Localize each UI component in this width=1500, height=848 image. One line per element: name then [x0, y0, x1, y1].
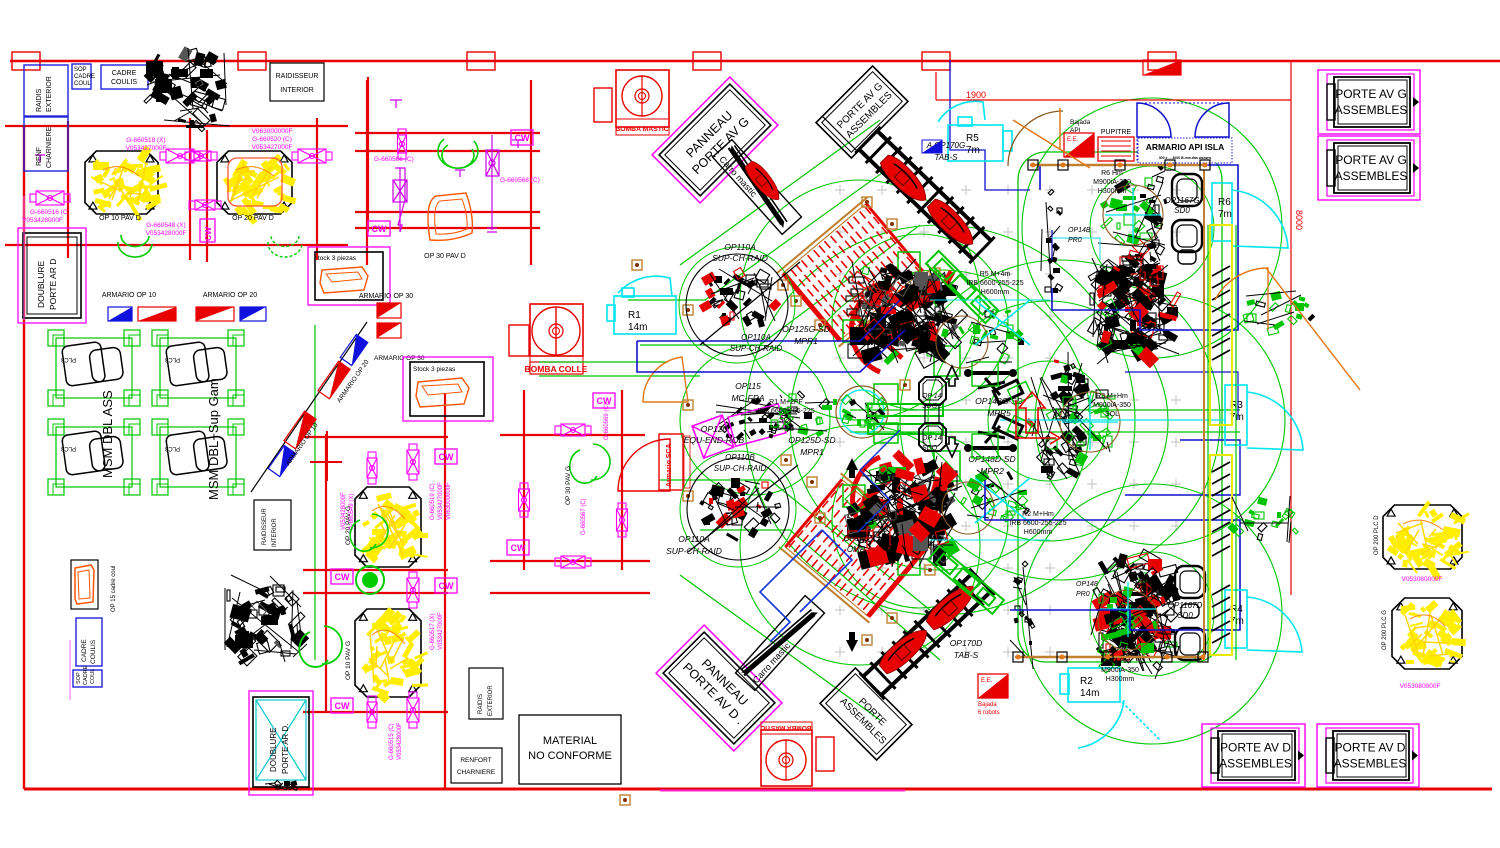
- svg-text:RAIDIS: RAIDIS: [478, 694, 484, 714]
- svg-text:PR0: PR0: [1068, 237, 1082, 244]
- svg-text:G-660515 (C): G-660515 (C): [389, 723, 395, 760]
- svg-text:MATERIAL: MATERIAL: [543, 735, 597, 747]
- svg-text:SD0: SD0: [1177, 611, 1193, 620]
- svg-text:OP125G-SD: OP125G-SD: [888, 320, 936, 330]
- svg-text:OP115: OP115: [735, 381, 761, 391]
- svg-text:V053080000F: V053080000F: [1402, 576, 1443, 583]
- svg-text:SOP: SOP: [76, 672, 82, 684]
- svg-text:PORTE AR D: PORTE AR D: [48, 259, 58, 310]
- svg-text:CW: CW: [515, 133, 530, 143]
- svg-text:SDO: SDO: [922, 403, 938, 410]
- svg-text:IRB 6600-255-225: IRB 6600-255-225: [966, 280, 1023, 287]
- svg-text:SOL: SOL: [779, 417, 793, 424]
- svg-text:OP 30 PAV D: OP 30 PAV D: [424, 253, 466, 260]
- svg-text:G-660567 (C): G-660567 (C): [581, 498, 587, 535]
- svg-text:MPR2: MPR2: [980, 466, 1004, 476]
- svg-text:SDO: SDO: [922, 445, 938, 452]
- svg-text:IRB 6600-255-225: IRB 6600-255-225: [1009, 520, 1066, 527]
- svg-text:CW: CW: [335, 701, 350, 711]
- svg-text:EQU-END-ROB: EQU-END-ROB: [684, 435, 745, 445]
- svg-text:V053428000F: V053428000F: [146, 230, 187, 237]
- svg-text:V053428000F: V053428000F: [397, 722, 403, 760]
- svg-text:CADRE: CADRE: [112, 70, 137, 77]
- svg-text:R6: R6: [1218, 197, 1231, 208]
- svg-text:IRB 6600-255-225: IRB 6600-255-225: [757, 408, 814, 415]
- svg-text:R5 M+4m: R5 M+4m: [980, 271, 1011, 278]
- svg-text:R6 Hm: R6 Hm: [1101, 170, 1123, 177]
- svg-text:PLC8: PLC8: [164, 356, 180, 362]
- svg-text:SUP-CH-RAID: SUP-CH-RAID: [712, 253, 768, 263]
- svg-text:G-660548 (X): G-660548 (X): [146, 222, 185, 229]
- svg-text:OP148: OP148: [1076, 581, 1098, 588]
- svg-text:CW: CW: [511, 543, 526, 553]
- svg-text:G-660516 (C: G-660516 (C: [30, 209, 68, 216]
- svg-text:OP 14: OP 14: [922, 393, 942, 400]
- svg-text:Bajada: Bajada: [1070, 119, 1091, 126]
- svg-text:R4 Hm: R4 Hm: [1109, 658, 1131, 665]
- svg-text:PLC8: PLC8: [60, 445, 76, 451]
- svg-text:CHARNIERE: CHARNIERE: [457, 769, 496, 776]
- svg-text:V053427000F: V053427000F: [438, 612, 444, 650]
- svg-text:1900: 1900: [966, 90, 986, 100]
- svg-text:CW: CW: [439, 452, 454, 462]
- svg-text:SOP: SOP: [74, 67, 87, 73]
- svg-text:RENF: RENF: [36, 147, 43, 166]
- svg-text:ARMARIO API ISLA: ARMARIO API ISLA: [1146, 142, 1225, 152]
- svg-text:R1 M+2PF: R1 M+2PF: [769, 399, 803, 406]
- svg-text:OP 15 cadre coul: OP 15 cadre coul: [111, 566, 117, 612]
- svg-text:V053080000F: V053080000F: [1400, 683, 1441, 690]
- svg-text:OP 30 PAV G: OP 30 PAV G: [565, 466, 572, 505]
- svg-text:8000: 8000: [1294, 210, 1304, 230]
- svg-text:MPR1: MPR1: [794, 336, 818, 346]
- svg-text:TAB-S: TAB-S: [935, 153, 959, 162]
- svg-text:INTERIOR: INTERIOR: [272, 518, 278, 547]
- svg-text:OP110A: OP110A: [678, 534, 710, 544]
- svg-text:H300mm: H300mm: [1106, 676, 1135, 683]
- svg-text:ARMARIO OP 30: ARMARIO OP 30: [374, 355, 425, 362]
- svg-text:E.E.: E.E.: [981, 678, 993, 684]
- svg-text:14m: 14m: [1080, 688, 1099, 699]
- svg-text:PORTE AV D: PORTE AV D: [1220, 741, 1291, 755]
- svg-text:V063000000F: V063000000F: [446, 482, 452, 520]
- svg-text:H300mm: H300mm: [1098, 188, 1127, 195]
- svg-text:ARMARIO OP 20: ARMARIO OP 20: [203, 292, 257, 299]
- svg-text:ARMARIO OP 10: ARMARIO OP 10: [102, 292, 156, 299]
- svg-text:DOUBLURE: DOUBLURE: [269, 728, 278, 772]
- svg-text:V053428000F: V053428000F: [22, 217, 63, 224]
- svg-text:PORTE AV G: PORTE AV G: [1335, 153, 1407, 167]
- svg-text:G-660566 (C): G-660566 (C): [374, 156, 414, 163]
- svg-text:COULIS: COULIS: [111, 79, 137, 86]
- svg-text:PLC8: PLC8: [164, 445, 180, 451]
- svg-text:M900iA-350: M900iA-350: [1093, 402, 1131, 409]
- svg-text:M900iA-350: M900iA-350: [1101, 667, 1139, 674]
- svg-text:OP 10 PAV G: OP 10 PAV G: [345, 641, 352, 680]
- svg-text:COUL: COUL: [90, 669, 96, 684]
- svg-text:COUL: COUL: [74, 81, 91, 87]
- svg-text:300 x ... 4000 B.mm.das wsiwrw: 300 x ... 4000 B.mm.das wsiwrw: [1159, 156, 1212, 160]
- svg-text:OP150: OP150: [844, 534, 869, 543]
- svg-text:OP110A: OP110A: [741, 333, 771, 342]
- svg-text:PORTE AV G: PORTE AV G: [1335, 87, 1407, 101]
- svg-text:6 robots: 6 robots: [978, 710, 1000, 716]
- svg-text:MPR1: MPR1: [800, 447, 824, 457]
- svg-text:V053428000F: V053428000F: [341, 492, 347, 530]
- svg-text:PORTE AR D.: PORTE AR D.: [281, 723, 290, 774]
- svg-text:PUPITRE: PUPITRE: [1101, 129, 1132, 136]
- svg-text:SOL: SOL: [1105, 411, 1119, 418]
- svg-text:MPR1: MPR1: [900, 332, 924, 342]
- svg-text:H600mm: H600mm: [981, 289, 1010, 296]
- svg-text:OP 20 PAV D: OP 20 PAV D: [232, 215, 274, 222]
- svg-text:RAIDIS: RAIDIS: [36, 88, 43, 112]
- svg-text:E.E.: E.E.: [1067, 137, 1079, 143]
- svg-text:ARMARIO OP 30: ARMARIO OP 30: [359, 293, 413, 300]
- svg-text:R3 M+Hm: R3 M+Hm: [1096, 393, 1128, 400]
- svg-text:R2: R2: [1080, 676, 1093, 687]
- svg-text:SUP-CH-RAID: SUP-CH-RAID: [714, 464, 767, 473]
- svg-text:G-660518 (X): G-660518 (X): [126, 137, 165, 144]
- svg-text:CW: CW: [335, 572, 350, 582]
- svg-text:7m: 7m: [1218, 209, 1232, 220]
- svg-text:G-660568 (C): G-660568 (C): [500, 177, 540, 184]
- svg-text:G-660517 (X): G-660517 (X): [430, 614, 436, 650]
- svg-text:14m: 14m: [628, 322, 647, 333]
- svg-text:OP1167D: OP1167D: [1168, 601, 1203, 610]
- svg-text:RAIDISSEUR: RAIDISSEUR: [276, 73, 319, 80]
- svg-text:G-660520 (C): G-660520 (C): [252, 136, 292, 143]
- svg-text:COULIS: COULIS: [90, 639, 97, 664]
- svg-text:V053427000F: V053427000F: [126, 145, 167, 152]
- svg-text:SUP-CH-RAID: SUP-CH-RAID: [666, 546, 722, 556]
- svg-text:MC-FRA: MC-FRA: [731, 393, 764, 403]
- svg-text:DOUBLURE: DOUBLURE: [36, 260, 46, 308]
- svg-text:G-660569 (C): G-660569 (C): [604, 403, 610, 440]
- svg-text:CADRE: CADRE: [81, 639, 88, 662]
- svg-text:SUP-CH-RAID: SUP-CH-RAID: [730, 344, 783, 353]
- svg-text:RAIDISSEUR: RAIDISSEUR: [262, 508, 268, 545]
- svg-text:R5: R5: [966, 133, 979, 144]
- svg-text:ASSEMBLES: ASSEMBLES: [1335, 103, 1408, 117]
- svg-text:V053427000F: V053427000F: [252, 144, 293, 151]
- svg-text:tock 3 piezas: tock 3 piezas: [318, 255, 357, 262]
- svg-text:ASSEMBLES: ASSEMBLES: [1334, 757, 1407, 771]
- svg-text:OP125D-SD: OP125D-SD: [788, 435, 835, 445]
- svg-text:CADRE: CADRE: [83, 665, 89, 685]
- svg-text:CW: CW: [372, 224, 387, 234]
- svg-text:H600mm: H600mm: [1024, 529, 1053, 536]
- svg-text:INTERIOR: INTERIOR: [280, 87, 313, 94]
- svg-text:OP120: OP120: [701, 424, 728, 434]
- svg-text:G-660519 (C): G-660519 (C): [430, 483, 436, 520]
- svg-text:OMP: OMP: [847, 545, 866, 554]
- svg-text:OP148D-SD: OP148D-SD: [968, 454, 1015, 464]
- svg-text:BOMBA COLLE: BOMBA COLLE: [525, 364, 588, 374]
- svg-text:RENFORT: RENFORT: [460, 757, 491, 764]
- svg-text:Bajada: Bajada: [978, 702, 997, 708]
- svg-text:NO CONFORME: NO CONFORME: [528, 750, 612, 762]
- svg-text:PORTE AV D: PORTE AV D: [1335, 741, 1406, 755]
- svg-text:OP170D: OP170D: [950, 638, 983, 648]
- svg-text:BOMBA MASTIC: BOMBA MASTIC: [615, 126, 668, 133]
- svg-text:R2 M+Hm: R2 M+Hm: [1022, 511, 1054, 518]
- svg-text:V053427000F: V053427000F: [438, 482, 444, 520]
- svg-text:BOMBA MASTIC: BOMBA MASTIC: [760, 724, 811, 731]
- svg-text:MSM DBL ASS: MSM DBL ASS: [100, 390, 115, 478]
- svg-text:MSM DBL+Sup Gam: MSM DBL+Sup Gam: [206, 378, 221, 500]
- svg-text:OP110B: OP110B: [725, 453, 755, 462]
- svg-text:SD0: SD0: [1174, 206, 1190, 215]
- svg-text:OP14B: OP14B: [1068, 227, 1091, 234]
- svg-text:OP 10 PAV D: OP 10 PAV D: [99, 215, 141, 222]
- svg-text:R1: R1: [628, 310, 641, 321]
- svg-text:EXTERIOR: EXTERIOR: [488, 685, 494, 716]
- svg-text:M900iA-350: M900iA-350: [1093, 179, 1131, 186]
- svg-text:OP110A: OP110A: [724, 242, 756, 252]
- svg-text:OP 14: OP 14: [922, 435, 942, 442]
- svg-text:OP125G-SD: OP125G-SD: [782, 324, 830, 334]
- svg-text:V063000000F: V063000000F: [252, 128, 293, 135]
- svg-text:ASSEMBLES: ASSEMBLES: [1219, 757, 1292, 771]
- svg-text:PLC8: PLC8: [60, 356, 76, 362]
- svg-text:TAB-S: TAB-S: [954, 650, 979, 660]
- svg-text:ASSEMBLES: ASSEMBLES: [1335, 169, 1408, 183]
- svg-text:OP 200 PLC D: OP 200 PLC D: [1374, 515, 1380, 555]
- svg-text:CW: CW: [203, 226, 213, 241]
- svg-text:OP 200 PLC G: OP 200 PLC G: [1382, 610, 1388, 650]
- svg-text:EXTERIOR: EXTERIOR: [46, 76, 53, 112]
- svg-text:OP1167G: OP1167G: [1165, 196, 1200, 205]
- svg-text:Stock 3 piezas: Stock 3 piezas: [413, 366, 456, 373]
- svg-text:PR0: PR0: [1076, 591, 1090, 598]
- svg-text:CW: CW: [439, 581, 454, 591]
- svg-text:7m: 7m: [966, 145, 980, 156]
- svg-text:CHARNIERE: CHARNIERE: [46, 126, 53, 168]
- svg-text:CADRE: CADRE: [74, 74, 95, 80]
